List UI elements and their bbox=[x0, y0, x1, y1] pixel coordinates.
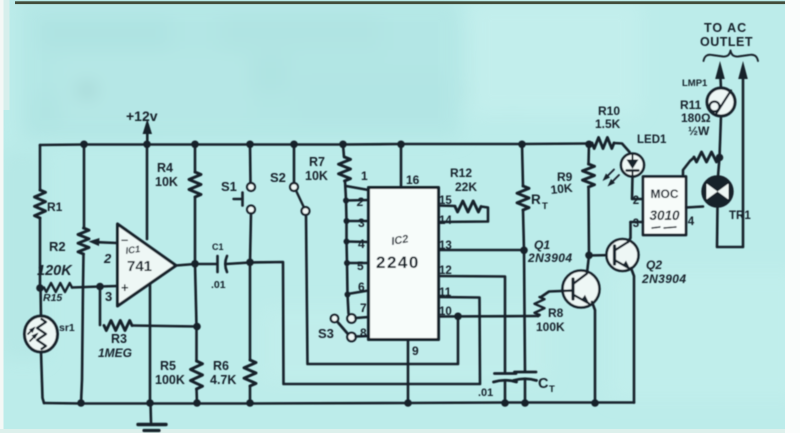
svg-text:.01: .01 bbox=[478, 387, 493, 399]
svg-text:+12v: +12v bbox=[126, 108, 158, 124]
svg-text:9: 9 bbox=[412, 344, 419, 358]
svg-text:IC1: IC1 bbox=[125, 244, 141, 257]
svg-text:T: T bbox=[549, 384, 555, 395]
svg-text:4.7K: 4.7K bbox=[210, 373, 236, 387]
svg-text:8: 8 bbox=[360, 326, 367, 340]
svg-text:–: – bbox=[121, 232, 128, 247]
svg-text:R15: R15 bbox=[43, 292, 62, 304]
svg-text:2240: 2240 bbox=[376, 253, 420, 272]
svg-text:6: 6 bbox=[358, 280, 365, 294]
svg-text:R2: R2 bbox=[49, 239, 66, 254]
svg-text:R8: R8 bbox=[548, 306, 564, 320]
svg-text:100K: 100K bbox=[536, 320, 565, 334]
svg-text:2: 2 bbox=[103, 251, 112, 266]
svg-text:OUTLET: OUTLET bbox=[700, 35, 753, 49]
svg-text:C: C bbox=[538, 376, 549, 392]
svg-text:+: + bbox=[121, 280, 129, 295]
svg-text:1: 1 bbox=[361, 169, 368, 183]
svg-text:4: 4 bbox=[688, 216, 695, 228]
svg-text:S2: S2 bbox=[270, 170, 286, 185]
svg-text:2: 2 bbox=[633, 195, 639, 207]
svg-text:sr1: sr1 bbox=[59, 322, 75, 334]
svg-text:TO AC: TO AC bbox=[704, 21, 747, 35]
svg-text:4: 4 bbox=[358, 237, 365, 251]
svg-text:C1: C1 bbox=[212, 242, 224, 252]
svg-text:3010: 3010 bbox=[649, 208, 680, 223]
svg-text:S1: S1 bbox=[221, 179, 237, 194]
svg-text:T: T bbox=[542, 201, 548, 212]
svg-text:R3: R3 bbox=[111, 332, 127, 346]
svg-text:14: 14 bbox=[439, 215, 452, 227]
svg-text:13: 13 bbox=[439, 240, 452, 252]
svg-text:180Ω: 180Ω bbox=[681, 111, 711, 125]
svg-text:3: 3 bbox=[105, 289, 112, 304]
svg-text:.01: .01 bbox=[211, 279, 226, 291]
svg-text:10K: 10K bbox=[550, 181, 574, 197]
svg-text:R6: R6 bbox=[213, 359, 229, 373]
svg-text:Q2: Q2 bbox=[646, 258, 662, 272]
svg-text:S3: S3 bbox=[318, 326, 334, 341]
svg-text:12: 12 bbox=[439, 265, 452, 277]
svg-text:MOC: MOC bbox=[651, 187, 679, 201]
svg-text:15: 15 bbox=[439, 195, 452, 207]
svg-text:2: 2 bbox=[356, 195, 364, 209]
svg-text:R12: R12 bbox=[450, 166, 472, 180]
svg-text:10: 10 bbox=[439, 306, 452, 318]
svg-text:5: 5 bbox=[357, 259, 364, 273]
svg-text:16: 16 bbox=[406, 173, 420, 187]
svg-text:1.5K: 1.5K bbox=[595, 117, 621, 131]
svg-text:R10: R10 bbox=[598, 104, 620, 118]
svg-text:LED1: LED1 bbox=[637, 134, 667, 146]
svg-text:1MEG: 1MEG bbox=[98, 346, 132, 360]
svg-text:100K: 100K bbox=[155, 373, 185, 387]
svg-text:120K: 120K bbox=[37, 263, 73, 279]
svg-text:2N3904: 2N3904 bbox=[527, 251, 572, 265]
svg-text:2N3904: 2N3904 bbox=[641, 272, 686, 286]
svg-text:½W: ½W bbox=[688, 124, 710, 138]
svg-text:10K: 10K bbox=[305, 169, 328, 183]
svg-text:3: 3 bbox=[358, 216, 365, 230]
svg-text:10K: 10K bbox=[155, 175, 178, 189]
svg-text:Q1: Q1 bbox=[534, 238, 550, 252]
svg-text:R4: R4 bbox=[157, 161, 173, 175]
svg-text:R1: R1 bbox=[47, 200, 63, 214]
svg-text:7: 7 bbox=[360, 301, 367, 315]
svg-text:R5: R5 bbox=[160, 359, 176, 373]
svg-text:R11: R11 bbox=[680, 98, 702, 112]
svg-text:22K: 22K bbox=[455, 180, 477, 194]
svg-text:11: 11 bbox=[439, 287, 452, 299]
svg-text:3: 3 bbox=[633, 218, 639, 230]
svg-text:741: 741 bbox=[127, 258, 152, 275]
svg-text:R: R bbox=[531, 192, 541, 207]
svg-text:R7: R7 bbox=[309, 155, 325, 169]
svg-text:TR1: TR1 bbox=[729, 210, 751, 222]
svg-text:LMP1: LMP1 bbox=[682, 78, 708, 89]
